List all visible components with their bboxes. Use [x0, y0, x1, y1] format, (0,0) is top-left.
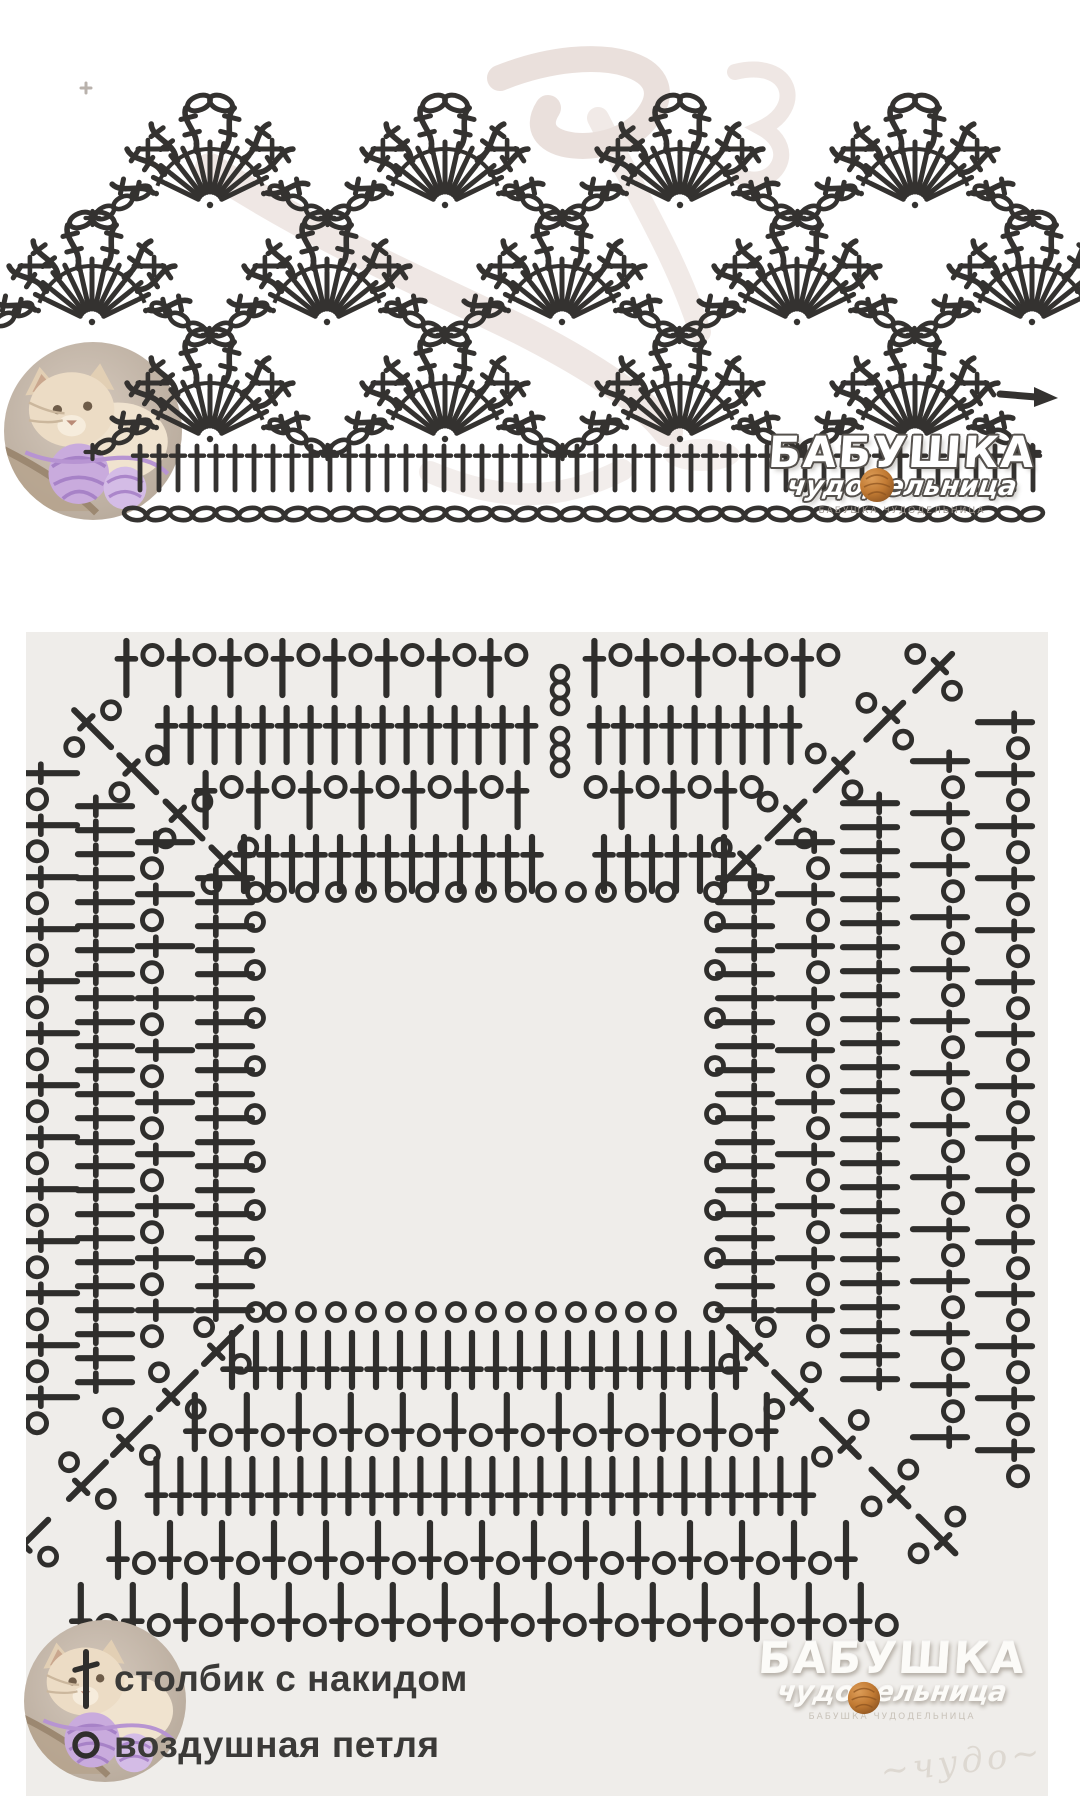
- crochet-fan-pattern-diagram: [0, 0, 1080, 632]
- legend-label: столбик с накидом: [114, 1658, 468, 1700]
- legend-label: воздушная петля: [114, 1724, 440, 1766]
- brand-watermark-bottom: БАБУШКА чудодельница БАБУШКА ЧУДОДЕЛЬНИЦ…: [752, 1638, 1032, 1722]
- crochet-pattern-page: БАБУШКА чудодельница БАБУШКА ЧУДОДЕЛЬНИЦ…: [0, 0, 1080, 1808]
- brand-watermark-mid: БАБУШКА чудодельница БАБУШКА ЧУДОДЕЛЬНИЦ…: [762, 432, 1042, 516]
- yarn-ball-icon: [858, 466, 896, 504]
- legend-item-chain: воздушная петля: [58, 1712, 468, 1778]
- chain-stitch-icon: [58, 1728, 114, 1762]
- legend-item-double-crochet: столбик с накидом: [58, 1646, 468, 1712]
- brand-name: БАБУШКА: [760, 432, 1043, 475]
- brand-subname: чудодельница: [760, 473, 1044, 500]
- brand-caption: БАБУШКА ЧУДОДЕЛЬНИЦА: [762, 506, 1042, 516]
- brand-name: БАБУШКА: [750, 1638, 1033, 1681]
- brand-subname: чудодельница: [750, 1679, 1034, 1706]
- granny-square-chart: [26, 632, 1048, 1796]
- granny-square-panel: [26, 632, 1048, 1796]
- double-crochet-icon: [58, 1648, 114, 1710]
- yarn-ball-icon: [846, 1680, 882, 1716]
- brand-caption: БАБУШКА ЧУДОДЕЛЬНИЦА: [752, 1712, 1032, 1722]
- legend: столбик с накидом воздушная петля: [58, 1646, 468, 1778]
